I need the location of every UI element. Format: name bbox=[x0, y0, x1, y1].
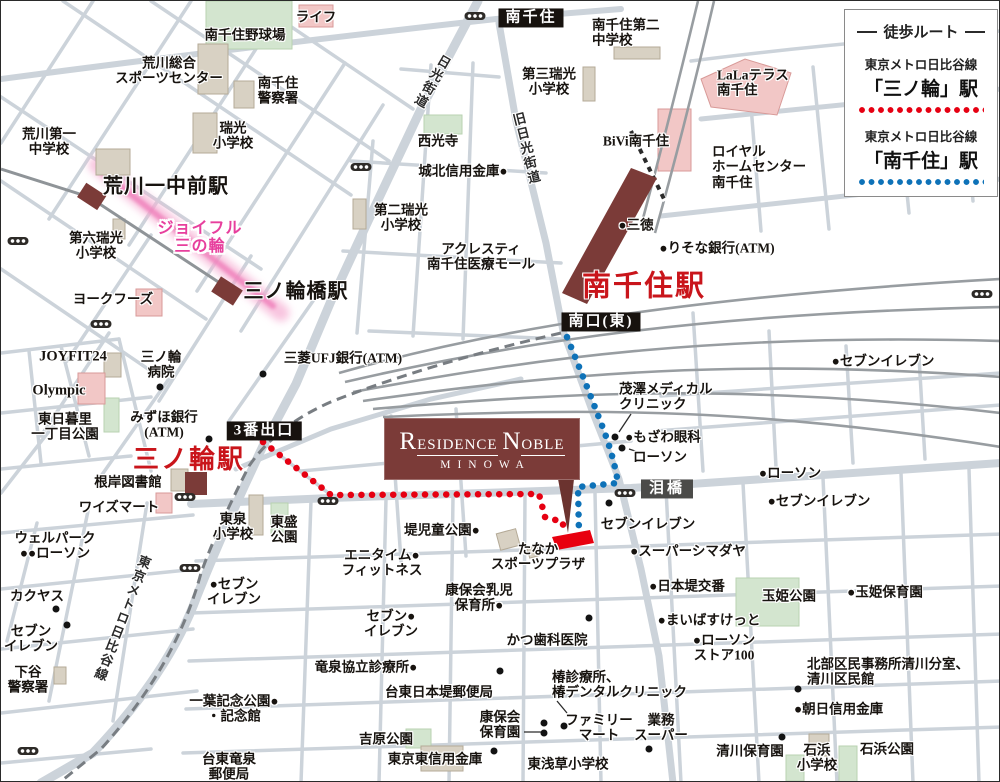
map-label: LaLaテラス 南千住 bbox=[717, 68, 789, 99]
map-label: 康保会乳児 保育所● bbox=[445, 583, 513, 614]
traffic-light-icon bbox=[318, 497, 339, 505]
map-label: 台東日本堤郵便局 bbox=[385, 684, 493, 699]
map-label: JOYFIT24 bbox=[39, 349, 107, 366]
map-label: セブン● イレブン bbox=[364, 609, 418, 640]
map-label: ファミリー マート bbox=[565, 713, 633, 744]
map-label: 康保会 保育園 bbox=[480, 710, 521, 741]
map-label: 茂澤メディカル クリニック bbox=[619, 382, 713, 413]
map-label: セブン イレブン bbox=[4, 624, 58, 655]
legend-entry-minamisenju: 東京メトロ日比谷線 「南千住」駅 bbox=[845, 126, 997, 186]
dash-icon bbox=[857, 31, 877, 33]
map-label: BiVi南千住 bbox=[603, 133, 669, 148]
map-label: 堤児童公園● bbox=[404, 522, 480, 537]
property-logo-subtitle: MINOWA bbox=[384, 459, 580, 471]
poi-dot bbox=[586, 615, 593, 622]
access-map: ライフ南千住野球場荒川総合 スポーツセンター南千住 警察署荒川第一 中学校瑞光 … bbox=[0, 0, 1000, 782]
station-name: 三ノ輪駅 bbox=[133, 445, 245, 475]
map-label: 南千住第二 中学校 bbox=[592, 18, 660, 49]
traffic-light-icon bbox=[615, 489, 636, 497]
map-label: みずほ銀行 (ATM) bbox=[130, 410, 198, 441]
poi-dot bbox=[497, 668, 504, 675]
map-label: 第二瑞光 小学校 bbox=[374, 203, 428, 234]
map-label: ウェルパーク ●●ローソン bbox=[15, 531, 96, 562]
poi-dot bbox=[606, 500, 613, 507]
map-label: 清川保育園 bbox=[716, 743, 784, 758]
red-dotted-line-icon bbox=[858, 106, 984, 114]
map-label: ●ローソン bbox=[759, 465, 821, 480]
poi-dot bbox=[491, 748, 498, 755]
poi-dot bbox=[260, 371, 267, 378]
legend-line-name: 東京メトロ日比谷線 bbox=[845, 54, 997, 73]
map-label: 石浜 小学校 bbox=[797, 743, 838, 774]
poi-dot bbox=[53, 606, 60, 613]
map-label: ●セブンイレブン bbox=[832, 353, 935, 368]
poi-dot bbox=[541, 730, 548, 737]
traffic-light-icon bbox=[180, 564, 201, 572]
map-label: 石浜公園 bbox=[860, 741, 914, 756]
map-label: 業務 スーパー bbox=[634, 713, 688, 744]
poi-dot bbox=[206, 436, 213, 443]
map-label: ロイヤル ホームセンター 南千住 bbox=[712, 144, 806, 190]
road-name: 東京メトロ日比谷線 bbox=[90, 552, 152, 683]
map-label: 東盛 公園 bbox=[271, 515, 298, 546]
traffic-light-icon bbox=[91, 320, 112, 328]
map-label: 一葉記念公園● ・記念館 bbox=[189, 694, 278, 725]
route-legend: 徒歩ルート 東京メトロ日比谷線 「三ノ輪」駅 東京メトロ日比谷線 「南千住」駅 bbox=[844, 9, 998, 197]
traffic-light-icon bbox=[351, 163, 372, 171]
map-label: ●ローソン ストア100 bbox=[693, 633, 755, 664]
poi-dot bbox=[646, 746, 653, 753]
signage-box: 3番出口 bbox=[227, 421, 302, 440]
map-label: ●朝日信用金庫 bbox=[794, 701, 883, 716]
poi-dot bbox=[795, 686, 802, 693]
signage-box: 南口(東) bbox=[562, 312, 641, 331]
dash-icon bbox=[965, 31, 985, 33]
map-label: かつ歯科医院 bbox=[507, 632, 588, 647]
map-label: 城北信用金庫● bbox=[418, 163, 507, 178]
map-label: 荒川総合 スポーツセンター bbox=[115, 56, 223, 87]
station-name: 荒川一中前駅 bbox=[103, 176, 229, 199]
signage-box: 南千住 bbox=[498, 8, 563, 27]
map-label: 玉姫公園 bbox=[762, 588, 816, 603]
poi-dot bbox=[64, 622, 71, 629]
property-logo: RESIDENCE NOBLE MINOWA bbox=[384, 418, 580, 480]
map-label: 三菱UFJ銀行(ATM) bbox=[284, 350, 402, 365]
map-label: ローソン bbox=[633, 449, 687, 464]
station-name: 南千住駅 bbox=[582, 270, 706, 303]
signage-box: 泪橋 bbox=[641, 479, 693, 498]
map-label: ●もざわ眼科 bbox=[625, 429, 701, 444]
map-label: ●三徳 bbox=[618, 217, 653, 232]
map-label: 西光寺 bbox=[418, 133, 459, 148]
legend-station-name: 「三ノ輪」駅 bbox=[845, 74, 997, 101]
map-label: エニタイム● フィットネス bbox=[342, 548, 423, 579]
map-label: ワイズマート bbox=[79, 499, 160, 514]
legend-title-text: 徒歩ルート bbox=[883, 21, 958, 42]
map-label: ●セブン イレブン bbox=[207, 577, 261, 608]
map-label: 東京東信用金庫 bbox=[388, 751, 483, 766]
poi-dot bbox=[779, 734, 786, 741]
traffic-light-icon bbox=[8, 237, 29, 245]
map-label: ライフ bbox=[296, 9, 337, 24]
legend-title: 徒歩ルート bbox=[845, 21, 997, 42]
station-name: 三ノ輪橋駅 bbox=[244, 281, 349, 304]
traffic-light-icon bbox=[465, 12, 486, 20]
map-label: たなか スポーツプラザ bbox=[491, 542, 585, 573]
map-label: 吉原公園 bbox=[359, 731, 413, 746]
legend-entry-minowa: 東京メトロ日比谷線 「三ノ輪」駅 bbox=[845, 54, 997, 114]
map-label: 竜泉協立診療所● bbox=[315, 659, 418, 674]
road-name: 日光街道 bbox=[410, 51, 453, 110]
map-label: ヨークフーズ bbox=[73, 291, 153, 306]
legend-line-name: 東京メトロ日比谷線 bbox=[845, 126, 997, 145]
map-label: 台東竜泉 郵便局 bbox=[202, 752, 256, 782]
traffic-light-icon bbox=[18, 747, 39, 755]
road-name: 旧日光街道 bbox=[509, 111, 542, 187]
map-label: ●まいばすけっと bbox=[658, 612, 761, 627]
poi-dot bbox=[612, 434, 619, 441]
map-label: 東日暮里 一丁目公園 bbox=[31, 412, 99, 443]
map-label: セブンイレブン bbox=[601, 516, 696, 531]
map-label: アクレスティ 南千住医療モール bbox=[427, 242, 535, 273]
shopping-street-name: ジョイフル 三の輪 bbox=[157, 220, 242, 256]
poi-dot bbox=[541, 720, 548, 727]
poi-dot bbox=[619, 445, 626, 452]
poi-dot bbox=[561, 723, 568, 730]
map-label: ●りそな銀行(ATM) bbox=[659, 240, 774, 255]
blue-dotted-line-icon bbox=[858, 178, 984, 186]
map-label: 根岸図書館 bbox=[94, 474, 162, 489]
property-logo-name: RESIDENCE NOBLE bbox=[384, 428, 580, 456]
map-label: Olympic bbox=[32, 383, 85, 400]
map-label: 南千住 警察署 bbox=[258, 76, 299, 107]
poi-dot bbox=[157, 384, 164, 391]
map-label: 三ノ輪 病院 bbox=[141, 350, 182, 381]
map-label: 第六瑞光 小学校 bbox=[69, 231, 123, 262]
map-label: 荒川第一 中学校 bbox=[22, 127, 76, 158]
map-label: 南千住野球場 bbox=[205, 27, 286, 42]
map-label: ●日本堤交番 bbox=[649, 578, 725, 593]
map-label: 瑞光 小学校 bbox=[213, 121, 254, 152]
traffic-light-icon bbox=[972, 290, 993, 298]
map-label: 北部区民事務所清川分室、 清川区民館 bbox=[807, 657, 969, 688]
map-label: 東浅草小学校 bbox=[528, 756, 609, 771]
map-label: ●セブンイレブン bbox=[768, 493, 871, 508]
traffic-light-icon bbox=[175, 493, 196, 501]
legend-station-name: 「南千住」駅 bbox=[845, 146, 997, 173]
map-label: ●玉姫保育園 bbox=[847, 584, 923, 599]
map-label: 椿診療所、 椿デンタルクリニック bbox=[552, 670, 687, 701]
map-label: 下谷 警察署 bbox=[8, 665, 49, 696]
map-label: ●スーパーシマダヤ bbox=[630, 543, 746, 558]
map-label: カクヤス bbox=[10, 588, 64, 603]
map-label: 東泉 小学校 bbox=[213, 512, 254, 543]
map-label: 第三瑞光 小学校 bbox=[522, 67, 576, 98]
